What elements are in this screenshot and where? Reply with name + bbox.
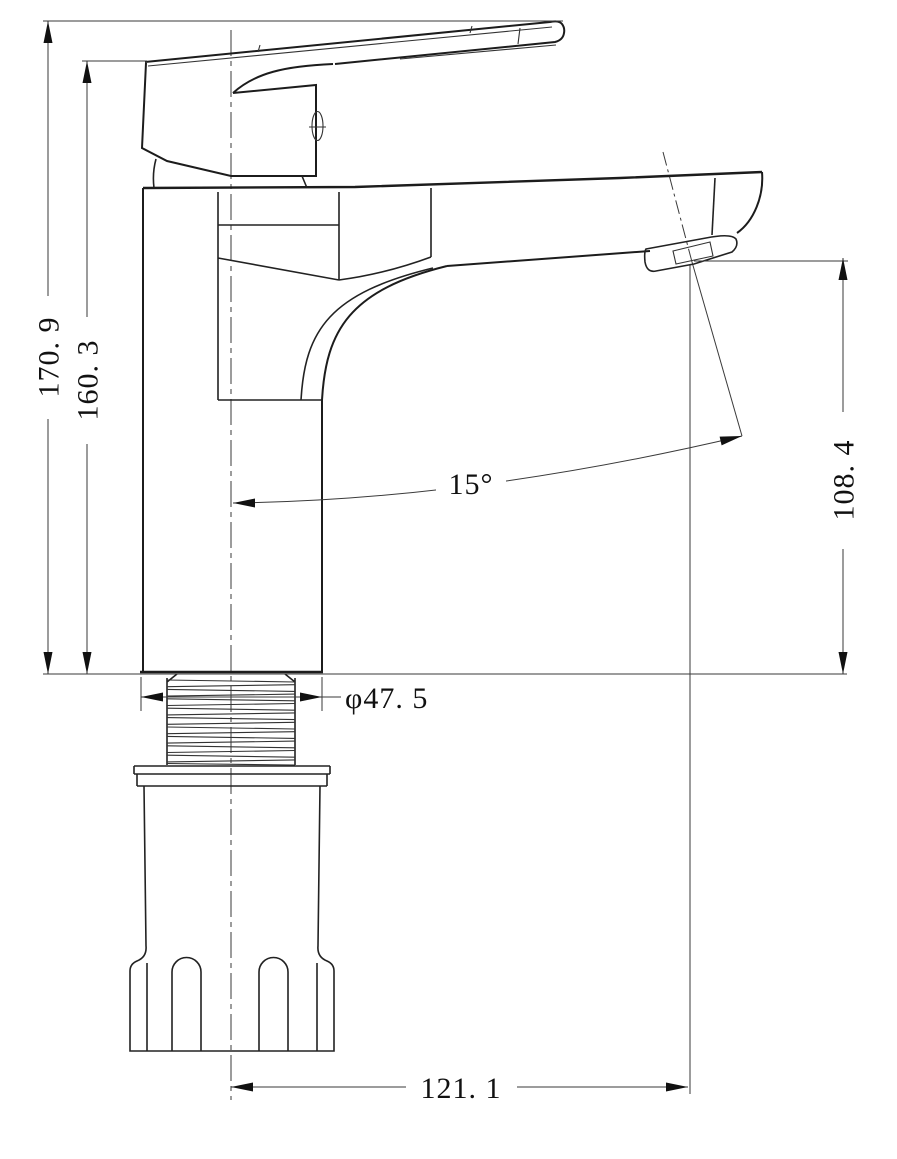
arrowhead-left-icon — [233, 499, 255, 508]
faucet-drawing-svg: 170. 9 160. 3 108. 4 φ47. 5 15° 121. 1 — [0, 0, 897, 1159]
arrowhead-right-icon — [720, 436, 742, 445]
dimension-body-height: 160. 3 — [72, 61, 105, 674]
valve-housing-lines — [218, 192, 339, 400]
arrowhead-up-icon — [44, 21, 53, 43]
arrowhead-right-icon — [666, 1083, 688, 1092]
spout-nose-joint-line — [712, 178, 715, 235]
dimension-spout-angle: 15° — [233, 436, 742, 508]
nut-outline — [130, 786, 334, 1051]
body-spout-top-edge — [143, 172, 762, 188]
mounting-flange — [134, 766, 330, 786]
handle-body — [142, 63, 333, 188]
technical-drawing-page: 170. 9 160. 3 108. 4 φ47. 5 15° 121. 1 — [0, 0, 897, 1159]
spout-nose-cap-curve — [737, 172, 762, 233]
aerator — [645, 236, 737, 272]
centerlines — [231, 30, 742, 1100]
spout-underside-inner-arc — [301, 268, 433, 400]
mounting-nut — [130, 786, 334, 1051]
lever-outline — [145, 21, 564, 64]
extension-lines — [43, 21, 848, 711]
arrowhead-down-icon — [83, 652, 92, 674]
thread-diameter-label: φ47. 5 — [345, 682, 428, 715]
spout-angle-label: 15° — [449, 468, 494, 501]
hot-cold-indicator-button — [312, 112, 323, 141]
arrowhead-left-icon — [141, 693, 163, 702]
aerator-outline — [645, 236, 737, 272]
spout-underside-edge — [447, 251, 650, 266]
spout-root-upper-curve — [339, 257, 431, 280]
dimension-overall-height: 170. 9 — [33, 21, 66, 674]
spout-nose — [712, 172, 762, 235]
arrowhead-down-icon — [839, 652, 848, 674]
body-height-label: 160. 3 — [72, 340, 105, 421]
arrowhead-down-icon — [44, 652, 53, 674]
dimension-spout-height: 108. 4 — [828, 258, 861, 674]
handle-lever — [145, 21, 564, 66]
handle-body-outline — [142, 63, 316, 176]
faucet-body — [140, 172, 762, 672]
flange-outline — [134, 766, 330, 786]
overall-height-label: 170. 9 — [33, 317, 66, 398]
angled-stream-line — [692, 262, 742, 436]
arrowhead-up-icon — [83, 61, 92, 83]
spout-underside-outer-arc — [322, 266, 447, 400]
lever-top-face-edge — [148, 27, 552, 66]
spout-height-label: 108. 4 — [828, 440, 861, 521]
spout-reach-label: 121. 1 — [421, 1072, 502, 1105]
arrowhead-left-icon — [231, 1083, 253, 1092]
arrowhead-right-icon — [300, 693, 322, 702]
dimension-spout-reach: 121. 1 — [231, 1072, 688, 1105]
nut-castellation-slots — [172, 958, 288, 1052]
